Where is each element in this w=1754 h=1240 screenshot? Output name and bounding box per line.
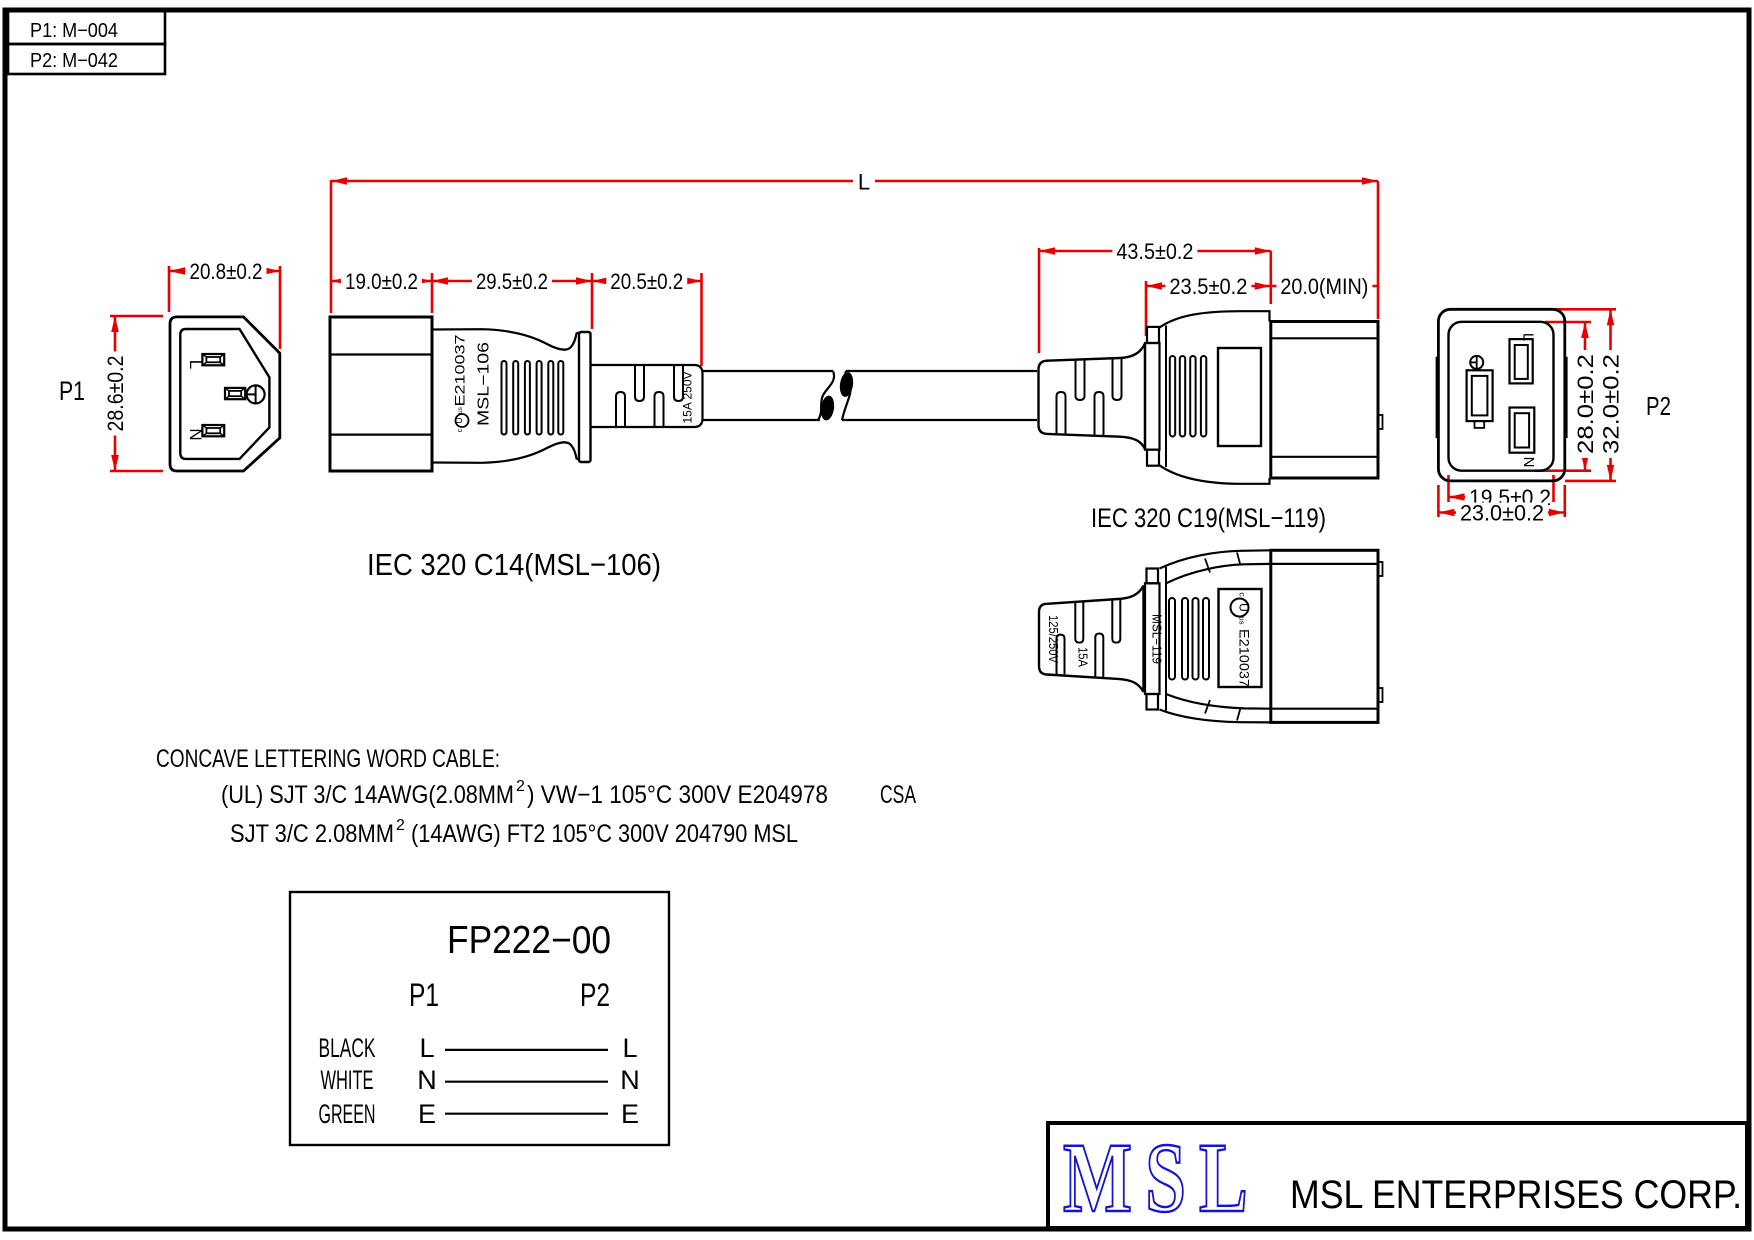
svg-text:GREEN: GREEN	[319, 1099, 376, 1129]
svg-text:L: L	[186, 360, 205, 369]
svg-text:U: U	[1237, 603, 1251, 612]
svg-text:P1: P1	[59, 376, 85, 406]
svg-text:19.0±0.2: 19.0±0.2	[345, 269, 418, 294]
svg-text:us: us	[457, 406, 464, 414]
svg-text:MSL−119: MSL−119	[1150, 614, 1164, 664]
svg-text:P1: M−004: P1: M−004	[30, 20, 118, 42]
svg-text:23.0±0.2: 23.0±0.2	[1460, 500, 1544, 525]
svg-text:20.5±0.2: 20.5±0.2	[610, 269, 683, 294]
svg-text:15A 250V: 15A 250V	[681, 372, 695, 424]
svg-text:U: U	[454, 417, 464, 424]
svg-text:FP222−00: FP222−00	[447, 919, 611, 962]
svg-text:2: 2	[516, 778, 525, 795]
svg-text:L: L	[858, 170, 870, 195]
svg-text:CONCAVE LETTERING WORD CABLE:: CONCAVE LETTERING WORD CABLE:	[156, 745, 500, 773]
svg-text:28.0±0.2: 28.0±0.2	[1573, 354, 1598, 454]
svg-text:L: L	[1520, 333, 1537, 341]
svg-text:P2: P2	[1646, 391, 1671, 421]
svg-text:20.0(MIN): 20.0(MIN)	[1280, 274, 1368, 299]
svg-text:IEC 320 C14(MSL−106): IEC 320 C14(MSL−106)	[367, 547, 661, 582]
svg-text:c: c	[455, 428, 464, 432]
svg-text:N: N	[1520, 457, 1537, 468]
svg-text:32.0±0.2: 32.0±0.2	[1599, 354, 1624, 454]
svg-text:CSA: CSA	[880, 781, 916, 809]
svg-text:43.5±0.2: 43.5±0.2	[1116, 239, 1193, 264]
svg-text:MSL ENTERPRISES CORP.: MSL ENTERPRISES CORP.	[1290, 1173, 1742, 1217]
svg-text:E: E	[621, 1099, 639, 1129]
svg-text:E210037: E210037	[453, 335, 468, 407]
svg-text:P1: P1	[409, 977, 439, 1013]
svg-text:P2: P2	[580, 977, 610, 1013]
svg-text:2: 2	[396, 817, 405, 834]
svg-text:23.5±0.2: 23.5±0.2	[1169, 274, 1247, 299]
svg-text:SJT 3/C 2.08MM: SJT 3/C 2.08MM	[230, 820, 394, 848]
svg-text:MSL: MSL	[1063, 1122, 1261, 1233]
svg-text:WHITE: WHITE	[321, 1065, 374, 1095]
svg-text:28.6±0.2: 28.6±0.2	[103, 356, 128, 432]
svg-text:15A: 15A	[1076, 647, 1090, 668]
svg-text:N: N	[417, 1065, 437, 1095]
svg-text:29.5±0.2: 29.5±0.2	[476, 269, 548, 294]
svg-text:L: L	[419, 1033, 434, 1063]
svg-text:MSL−106: MSL−106	[476, 342, 493, 426]
svg-text:E: E	[418, 1099, 436, 1129]
svg-text:(UL) SJT 3/C 14AWG(2.08MM: (UL) SJT 3/C 14AWG(2.08MM	[221, 781, 514, 809]
svg-text:) VW−1 105°C 300V E204978: ) VW−1 105°C 300V E204978	[527, 781, 828, 809]
svg-text:N: N	[186, 428, 205, 440]
svg-text:(14AWG) FT2 105°C 300V 204790: (14AWG) FT2 105°C 300V 204790 MSL	[411, 820, 798, 848]
svg-text:L: L	[622, 1033, 637, 1063]
svg-text:125/250V: 125/250V	[1046, 615, 1060, 664]
svg-text:P2: M−042: P2: M−042	[30, 50, 118, 72]
svg-text:E210037: E210037	[1237, 629, 1252, 687]
svg-text:N: N	[620, 1065, 640, 1095]
svg-text:BLACK: BLACK	[319, 1033, 376, 1063]
svg-text:us: us	[1238, 617, 1247, 625]
svg-text:IEC 320 C19(MSL−119): IEC 320 C19(MSL−119)	[1091, 503, 1326, 533]
svg-text:20.8±0.2: 20.8±0.2	[190, 259, 263, 284]
